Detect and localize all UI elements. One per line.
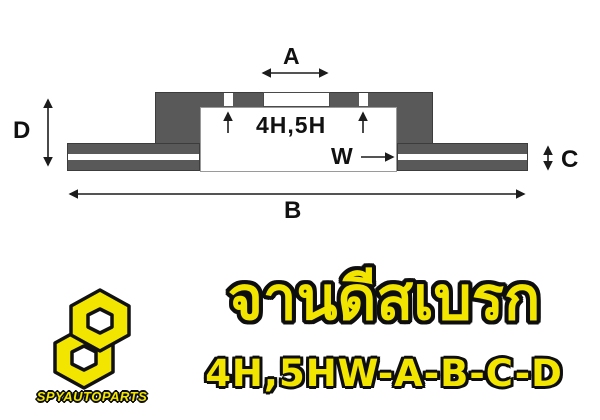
bolt-hole-slot-left [224,93,233,106]
dimension-label-w: W [331,145,353,168]
dimension-label-c: C [561,148,578,172]
rotor-flange-right [397,143,528,171]
thai-product-title: จานดีสเบรก [168,262,600,337]
rotor-flange-left [67,143,200,171]
dimension-label-a: A [283,45,300,68]
product-banner-image: A B C D W 4H,5H SPYAUTOPARTS จานดีสเบรก … [0,0,600,420]
bolt-hole-slot-right [359,93,368,106]
vent-gap-right [398,154,527,160]
vent-gap-left [68,154,199,160]
spec-code-subtitle: 4H,5HW-A-B-C-D [168,354,600,395]
brand-name-text: SPYAUTOPARTS [28,389,156,404]
dimension-label-b: B [284,199,301,223]
spy-autoparts-logo-icon [40,287,144,391]
bolt-pattern-label: 4H,5H [256,114,326,137]
dimension-label-d: D [13,119,30,143]
center-bore-opening [263,92,330,107]
